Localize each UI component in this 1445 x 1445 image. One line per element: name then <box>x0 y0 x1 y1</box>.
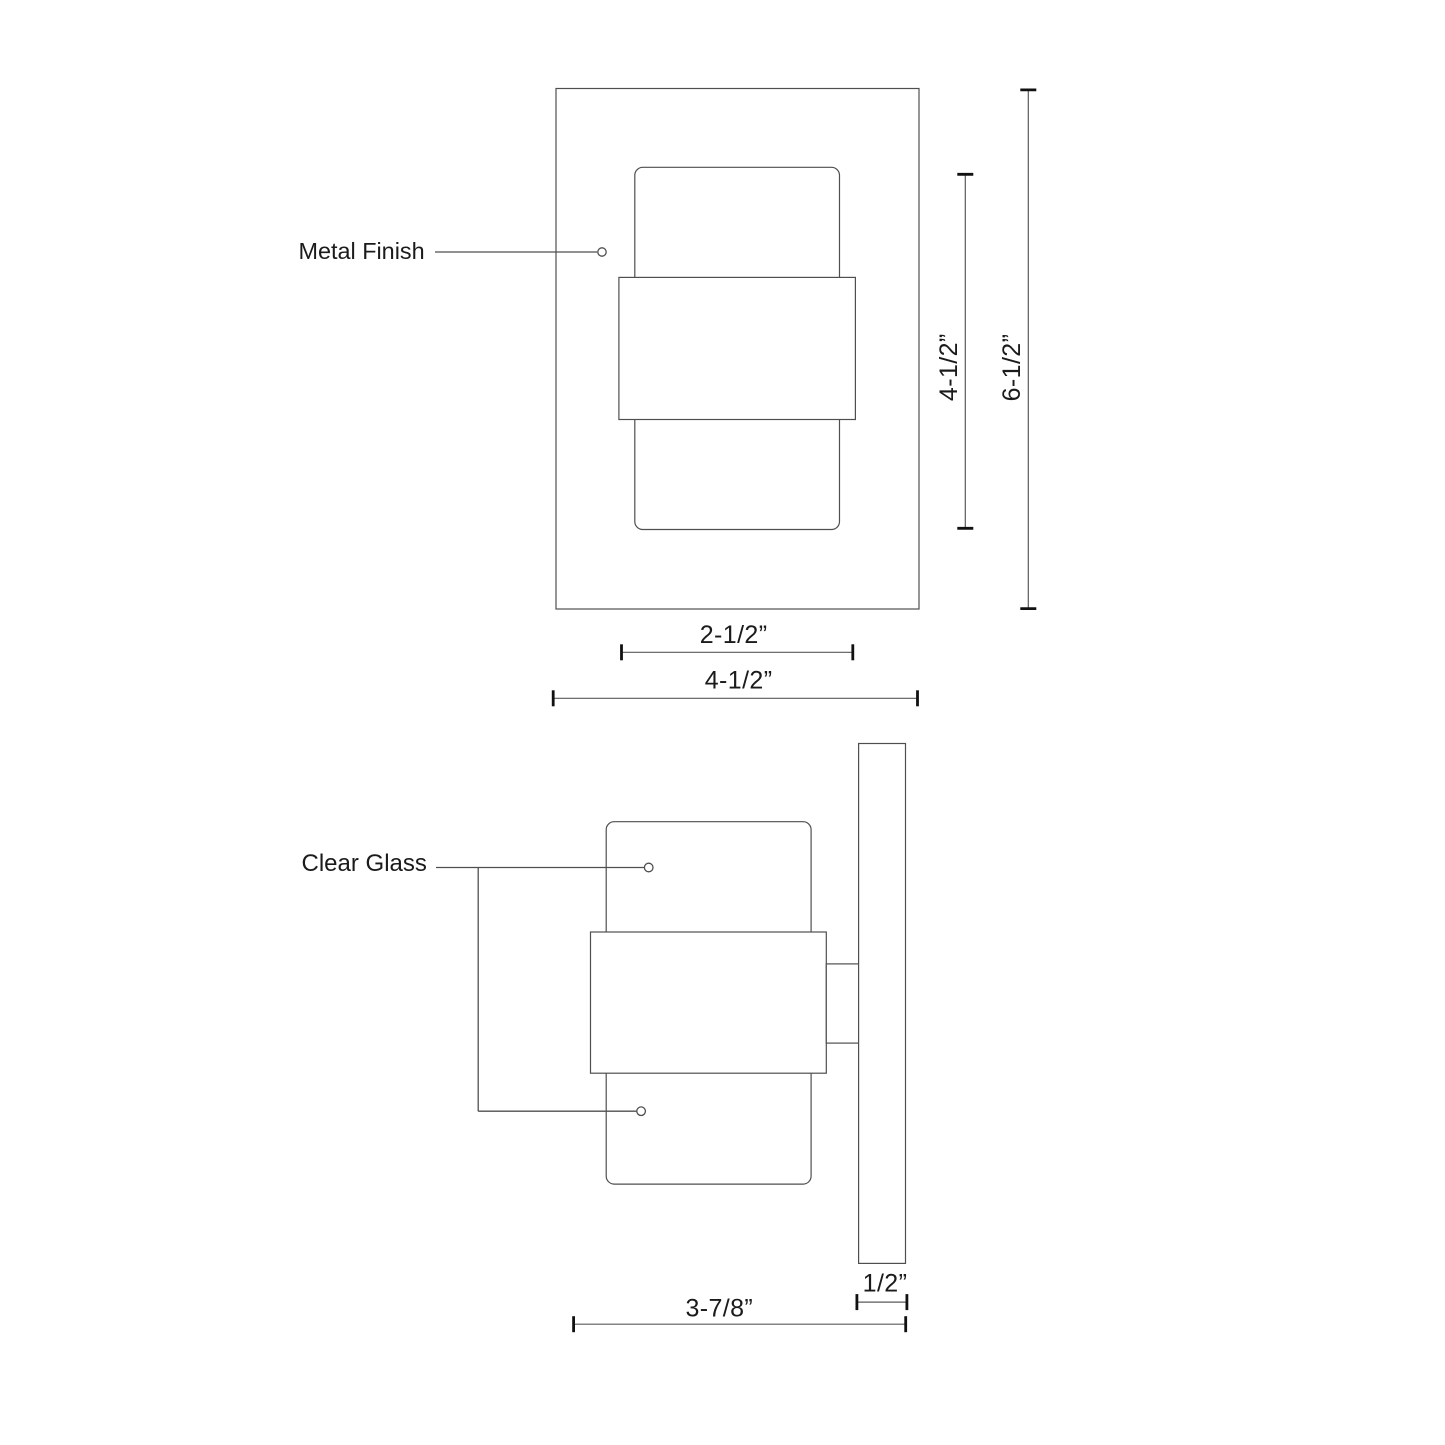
svg-text:2-1/2”: 2-1/2” <box>700 621 768 649</box>
svg-text:4-1/2”: 4-1/2” <box>705 667 773 695</box>
svg-text:3-7/8”: 3-7/8” <box>685 1294 753 1322</box>
svg-text:4-1/2”: 4-1/2” <box>935 333 963 401</box>
svg-text:1/2”: 1/2” <box>863 1269 908 1297</box>
svg-text:Metal Finish: Metal Finish <box>299 238 425 264</box>
svg-text:6-1/2”: 6-1/2” <box>998 334 1026 402</box>
svg-text:Clear Glass: Clear Glass <box>302 850 427 877</box>
